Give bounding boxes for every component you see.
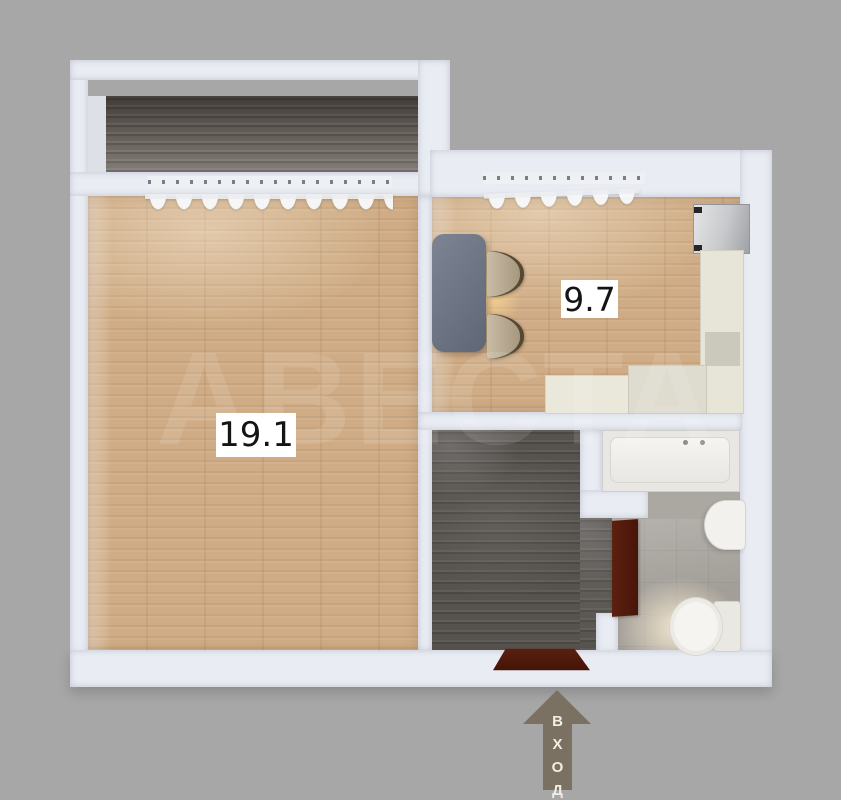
living-room-window (148, 176, 392, 188)
outer-wall-left (70, 60, 88, 687)
outer-wall-bottom (70, 650, 772, 687)
faucet-dot (683, 440, 688, 445)
fridge (693, 204, 750, 254)
outer-wall-top (70, 60, 450, 80)
hallway-floor (432, 430, 580, 652)
floor-plan: АВЕСТА 19.1 9.7 В Х О Д (0, 0, 841, 800)
entrance-letter: О (552, 760, 564, 775)
bathtub-basin (610, 437, 730, 483)
entry-door (493, 648, 590, 671)
bathroom-door (612, 519, 638, 617)
living-room-curtain (145, 194, 393, 220)
kitchen-counter (545, 375, 631, 414)
entrance-letter: В (552, 714, 563, 729)
balcony-window (88, 78, 432, 98)
kitchen-window (483, 172, 645, 184)
area-label-living-room: 19.1 (216, 413, 296, 457)
wall-kitchen-hallway (418, 412, 742, 430)
area-label-kitchen: 9.7 (561, 280, 618, 318)
balcony-wall-face (88, 96, 106, 172)
wall-bathroom-jog (580, 490, 648, 518)
kitchen-counter (628, 365, 707, 414)
entrance-letter: Д (552, 783, 563, 798)
sink (704, 500, 746, 550)
entrance-label: В Х О Д (543, 714, 572, 798)
entrance-letter: Х (552, 737, 562, 752)
faucet-dot (700, 440, 705, 445)
balcony-floor (106, 96, 418, 172)
dining-table (432, 234, 486, 352)
kitchen-counter-sink (705, 332, 740, 366)
toilet-bowl (669, 597, 723, 656)
bathtub (602, 430, 740, 492)
